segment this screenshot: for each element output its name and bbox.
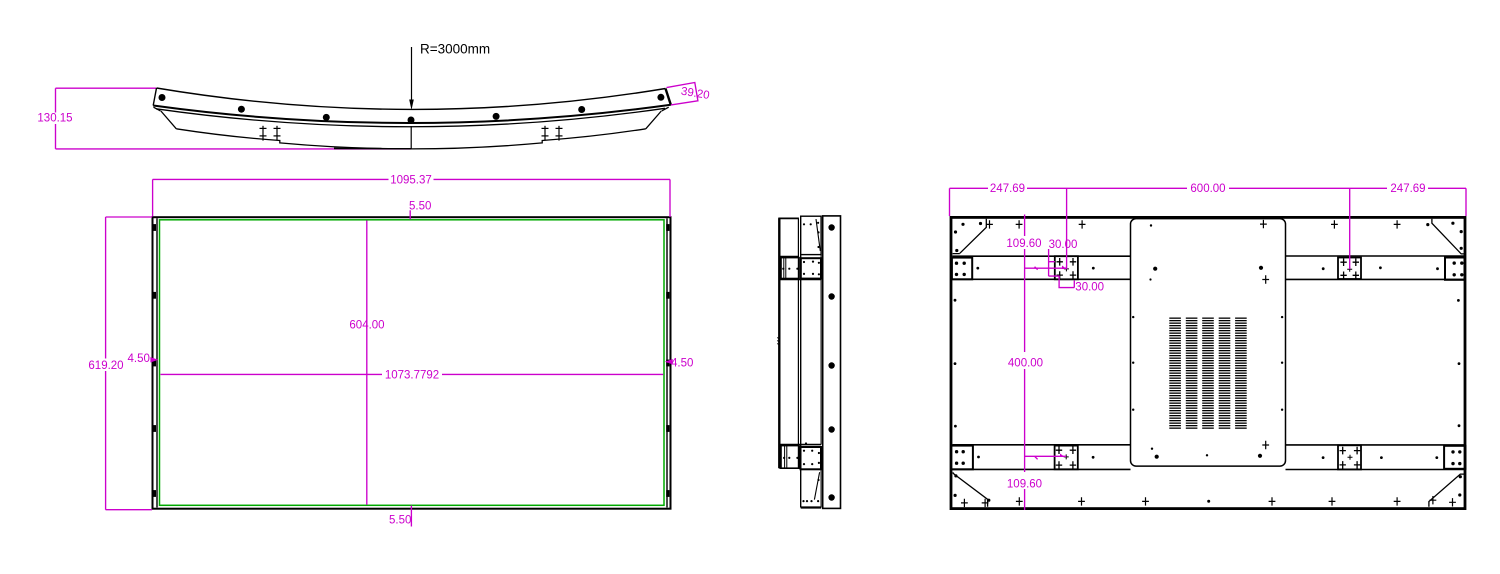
- svg-text:30.00: 30.00: [1075, 282, 1104, 294]
- svg-text:600.00: 600.00: [1190, 183, 1225, 195]
- svg-text:109.60: 109.60: [1006, 238, 1041, 250]
- svg-text:R=3000mm: R=3000mm: [420, 42, 490, 57]
- svg-text:1095.37: 1095.37: [390, 174, 432, 186]
- svg-text:604.00: 604.00: [349, 320, 384, 332]
- svg-text:4.50: 4.50: [671, 357, 693, 369]
- svg-text:247.69: 247.69: [1390, 183, 1425, 195]
- svg-text:1073.7792: 1073.7792: [385, 369, 439, 381]
- svg-text:130.15: 130.15: [37, 113, 72, 125]
- svg-text:247.69: 247.69: [990, 183, 1025, 195]
- svg-text:5.50: 5.50: [409, 201, 431, 213]
- svg-text:4.50: 4.50: [128, 353, 150, 365]
- svg-text:400.00: 400.00: [1008, 358, 1043, 370]
- svg-text:619.20: 619.20: [88, 360, 123, 372]
- svg-text:5.50: 5.50: [389, 515, 411, 527]
- svg-text:109.60: 109.60: [1007, 479, 1042, 491]
- svg-text:30.00: 30.00: [1049, 239, 1078, 251]
